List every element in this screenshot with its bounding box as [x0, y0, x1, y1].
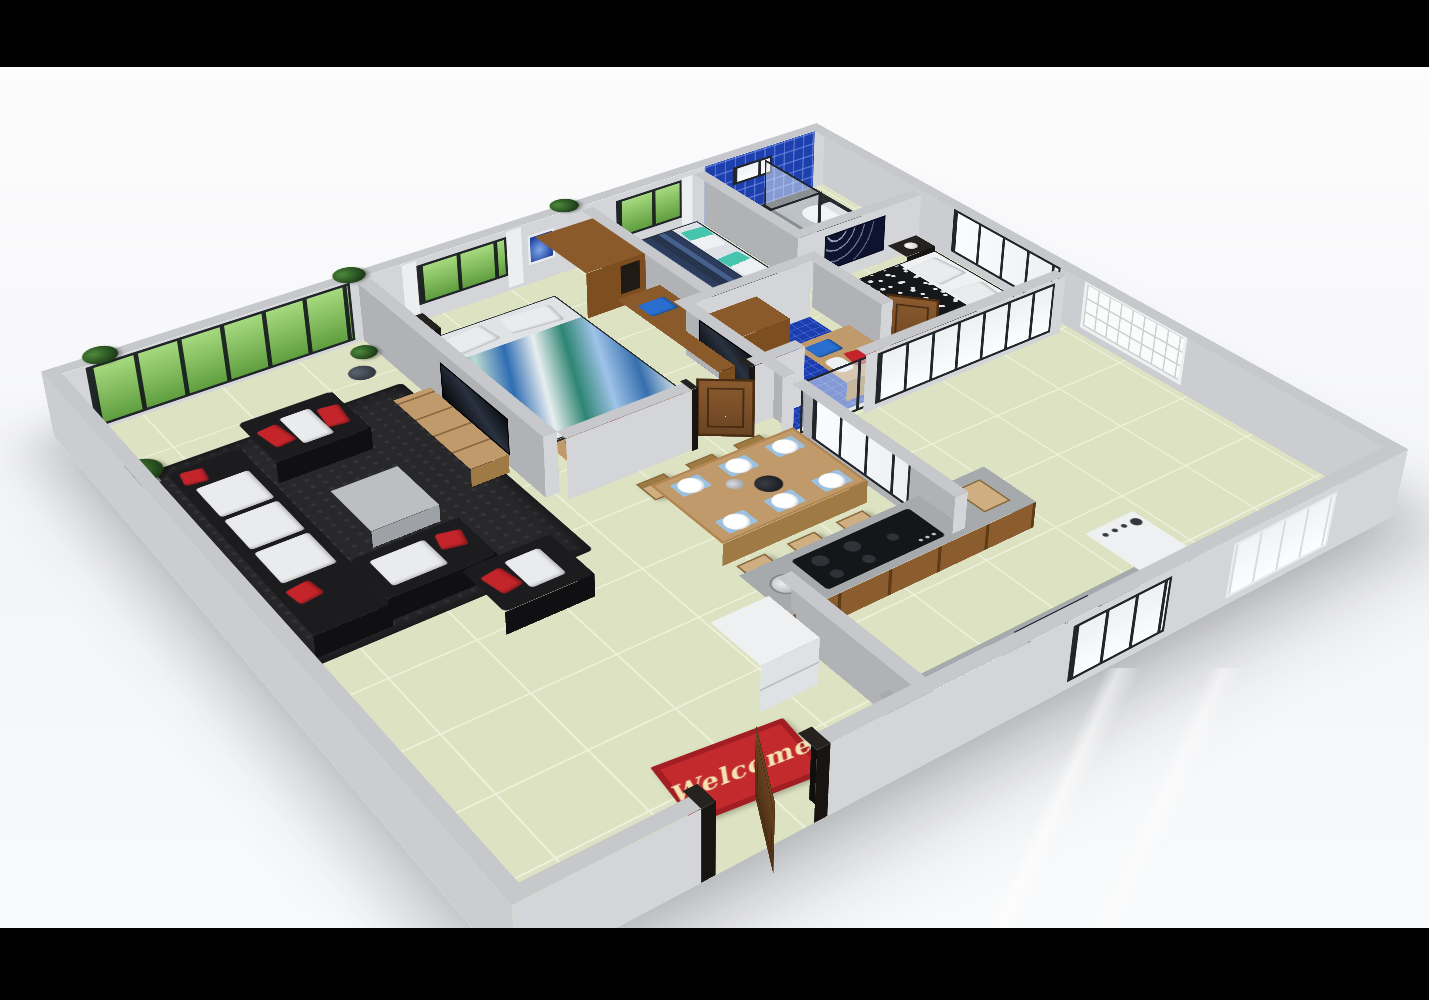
blue-towel — [804, 338, 844, 358]
letterbox-bottom — [0, 928, 1429, 1000]
curtain-bedroom2 — [682, 175, 693, 228]
serving-bowl — [722, 477, 748, 492]
red-pillow — [434, 529, 469, 550]
master-door-leaf — [696, 378, 755, 437]
blue-cushion — [637, 296, 679, 317]
entry-post-face — [701, 801, 716, 883]
bedroom3-lamp — [901, 241, 920, 250]
wardrobe-open-shelf — [621, 260, 641, 295]
plate — [813, 470, 851, 491]
plate — [767, 436, 804, 456]
post-face — [692, 387, 699, 451]
screenshot-stage: Welcome — [0, 0, 1429, 1000]
plate — [766, 490, 804, 512]
scene: Welcome — [0, 0, 1429, 1000]
red-pillow — [179, 468, 210, 487]
floor-plan-world: Welcome — [54, 180, 1393, 981]
letterbox-top — [0, 0, 1429, 67]
red-pillow — [285, 580, 326, 605]
curtain-right — [506, 227, 524, 288]
